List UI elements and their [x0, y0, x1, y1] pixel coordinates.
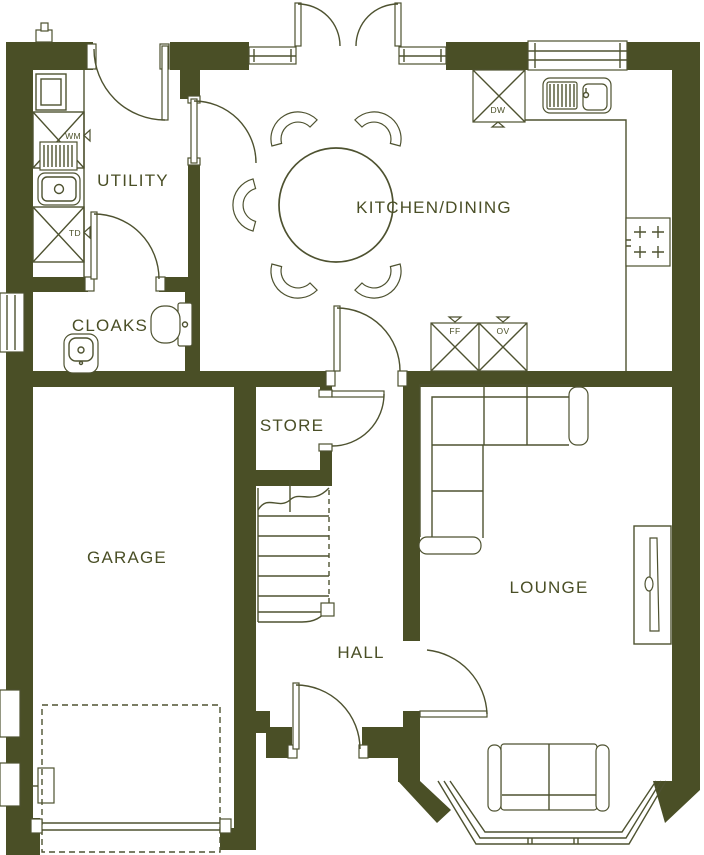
door-swing-marker [449, 317, 461, 322]
wall-mid-band [6, 371, 332, 387]
wall-cloaks-top-a [33, 277, 88, 292]
garage-door-bracket [31, 819, 42, 833]
kitchen-sink [543, 78, 611, 113]
floor-plan: UTILITY KITCHEN/DINING CLOAKS STORE GARA… [0, 0, 704, 855]
tv-unit [634, 526, 671, 644]
hob [626, 218, 670, 266]
windows [0, 23, 627, 806]
stairs [258, 480, 334, 622]
wall-top-mid [170, 42, 249, 70]
wall-bay-left [398, 781, 451, 823]
french-doors [295, 3, 401, 46]
door-swing-marker [497, 317, 509, 322]
dining-chair [262, 262, 319, 308]
room-label-kitchen-dining: KITCHEN/DINING [356, 198, 512, 217]
window-cloaks [0, 293, 24, 352]
sofa-armrest [569, 387, 588, 445]
garage-features [31, 705, 231, 852]
window-french-left [249, 47, 296, 64]
room-label-cloaks: CLOAKS [72, 316, 148, 335]
wall-top-kitchen [446, 42, 528, 70]
wash-basin [64, 334, 98, 373]
dining-chair [354, 262, 411, 308]
kitchen-hall-door [334, 306, 400, 371]
room-label-hall: HALL [337, 643, 384, 662]
wall-store-bottom [253, 470, 332, 486]
sofa-armrest [596, 745, 609, 811]
sofa-armrest [488, 745, 501, 811]
door-swing-marker [84, 227, 90, 238]
wall-bay-transition [398, 730, 420, 782]
garage-door-bracket [220, 819, 231, 833]
wall-utility-kitchen [188, 163, 200, 282]
window-kitchen [528, 41, 627, 70]
utility-sink [38, 142, 80, 205]
dining-chair [233, 179, 256, 231]
floor-plan-drawing: UTILITY KITCHEN/DINING CLOAKS STORE GARA… [0, 0, 704, 855]
wall-lounge-door-hinge [403, 711, 420, 730]
newel-post [321, 603, 334, 616]
tv-mount [645, 577, 653, 591]
jamb [326, 371, 335, 386]
room-label-garage: GARAGE [87, 548, 167, 567]
jamb [156, 277, 165, 291]
kitchen-counter-edge [525, 120, 626, 371]
wall-top-right [627, 42, 700, 70]
window-french-right [399, 47, 446, 64]
kitchen-fixtures [431, 70, 670, 371]
room-label-store: STORE [260, 416, 324, 435]
utility-external-door [94, 46, 168, 120]
utility-kitchen-door [191, 99, 256, 163]
sofa-armrest [419, 537, 481, 554]
wall-store-jamb-bottom [320, 450, 332, 472]
tumble-dryer-unit [33, 207, 90, 262]
appliance-label-dw: DW [491, 105, 506, 115]
wall-lounge-left [403, 383, 420, 641]
utility-cloaks-door [91, 212, 159, 279]
cloaks-fixtures [64, 303, 192, 373]
wall-garage-right [234, 387, 256, 850]
two-seat-sofa [488, 744, 609, 811]
walls [6, 42, 700, 855]
toilet [151, 303, 192, 346]
jamb [319, 390, 332, 397]
dishwasher-unit [473, 70, 525, 127]
door-swing-marker [492, 122, 504, 127]
corner-sofa [419, 385, 588, 554]
jamb [319, 444, 332, 451]
wall-step-utility-kitchen [180, 70, 200, 99]
flue-box [36, 23, 52, 42]
dining-chair [262, 102, 319, 148]
wall-top-left [6, 42, 93, 70]
lounge-door [420, 650, 487, 717]
appliance-label-ov: OV [496, 326, 509, 336]
dining-chair [354, 102, 411, 148]
room-label-lounge: LOUNGE [510, 578, 589, 597]
appliance-label-ff: FF [449, 326, 460, 336]
room-label-utility: UTILITY [97, 171, 169, 190]
store-door [332, 391, 384, 446]
wall-right-exterior [672, 70, 700, 781]
jamb [398, 371, 407, 386]
front-door [293, 683, 360, 749]
appliance-label-td: TD [69, 228, 81, 238]
door-swing-marker [84, 130, 90, 141]
wall-bay-right [653, 781, 700, 823]
utility-fixtures [33, 70, 90, 278]
appliance-label-wm: WM [65, 131, 81, 141]
garage-door [42, 823, 220, 830]
boiler-unit [36, 74, 66, 110]
